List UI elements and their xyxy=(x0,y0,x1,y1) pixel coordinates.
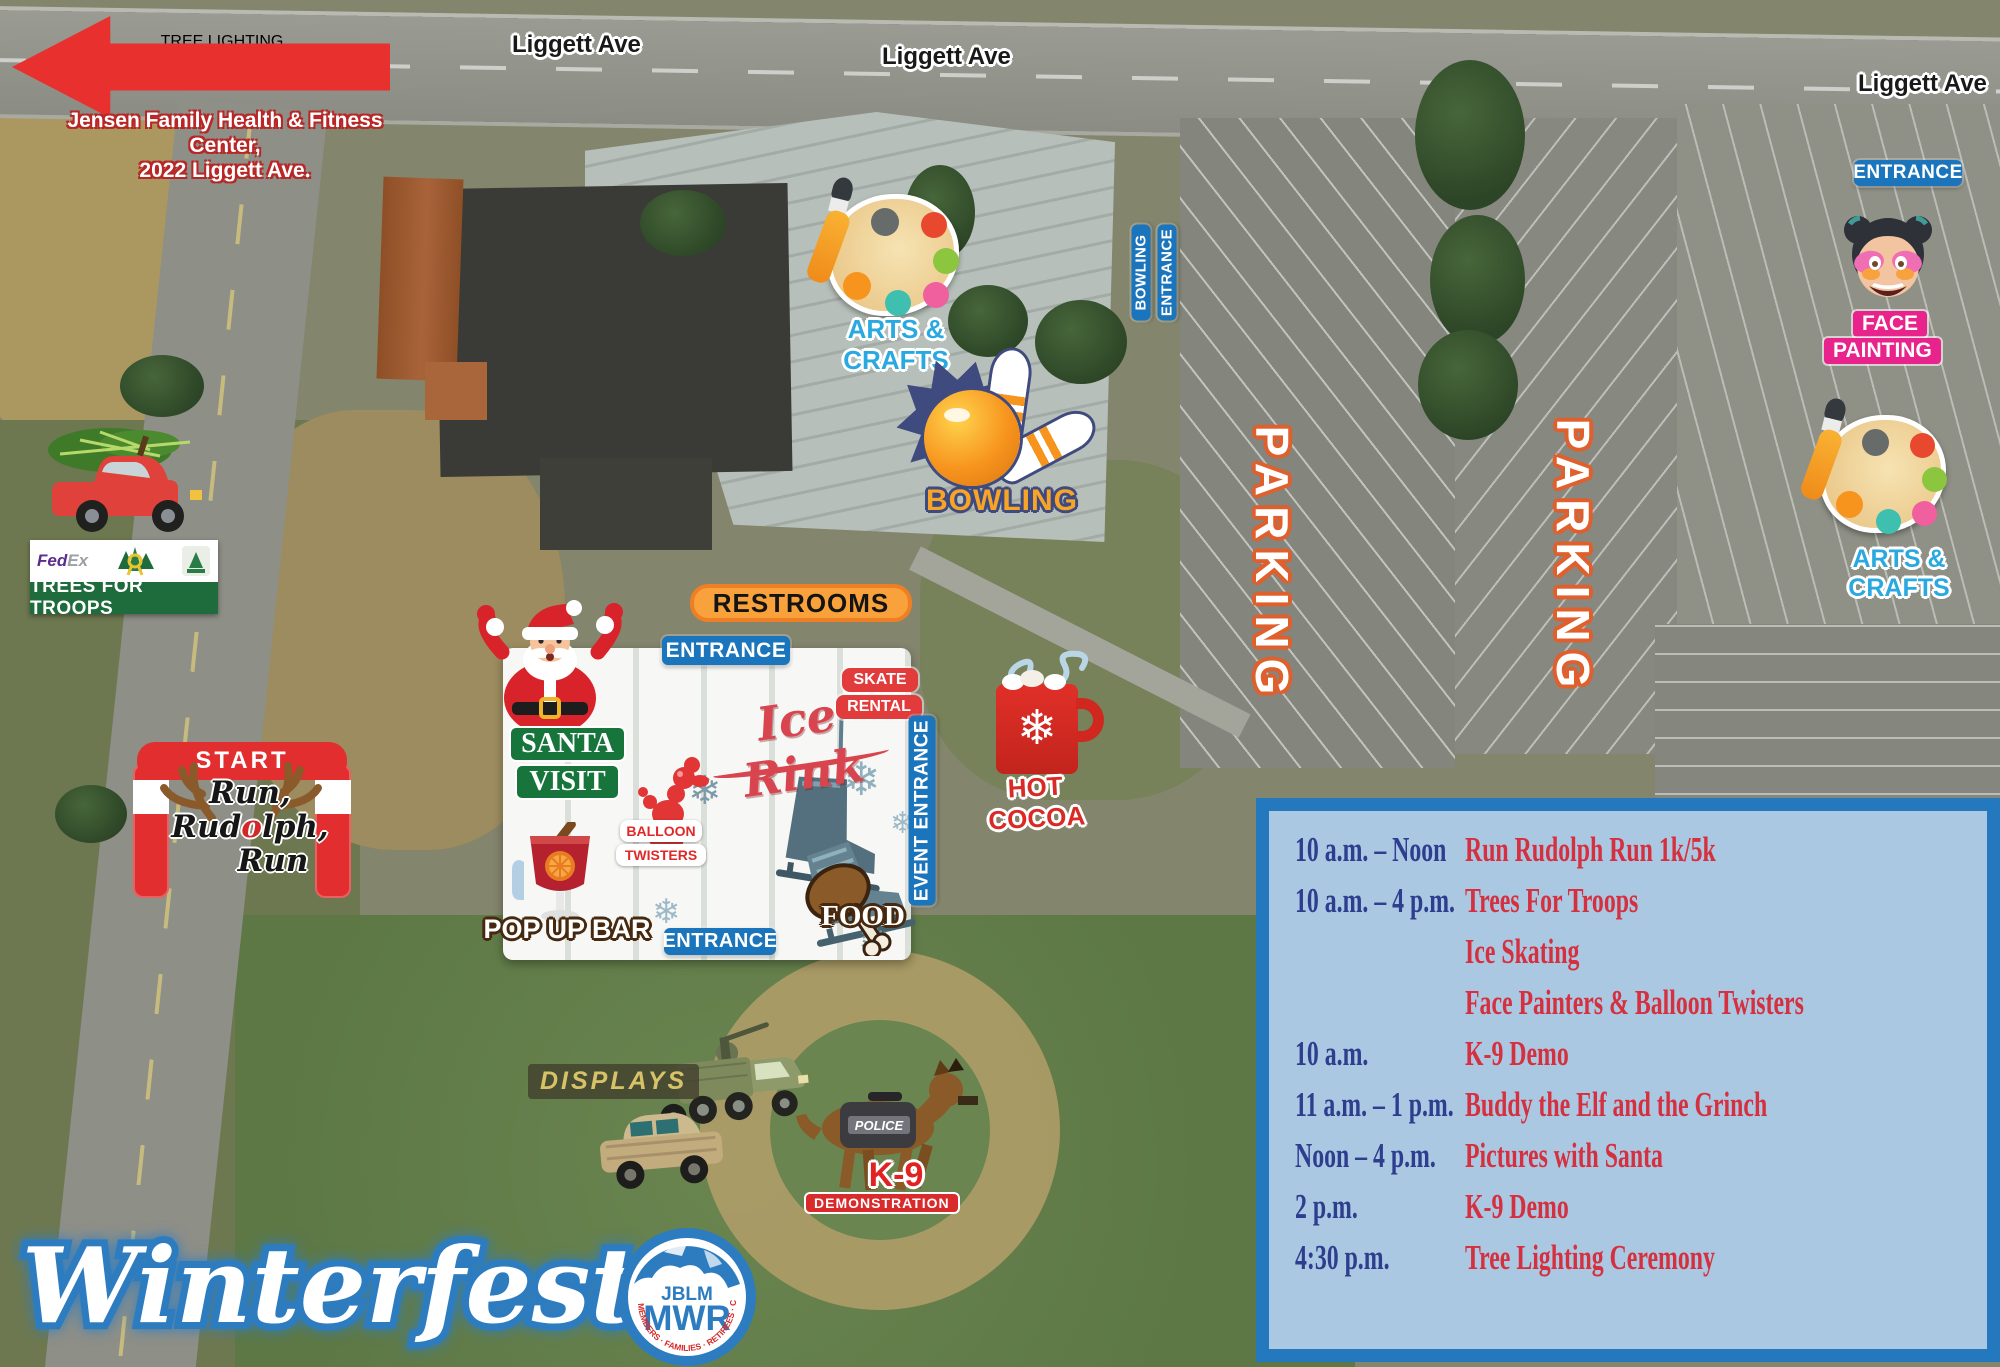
snowflake-icon: ❄ xyxy=(1017,705,1057,753)
parking-lot-center-left xyxy=(1180,118,1455,768)
humvee-icon xyxy=(582,1086,743,1207)
schedule-event: Ice Skating xyxy=(1465,932,1579,972)
street-liggett-ave-1: Liggett Ave xyxy=(512,31,641,59)
jblm-mwr-logo: JBLM MWR SERVICE MEMBERS · FAMILIES · RE… xyxy=(612,1222,762,1367)
winterfest-event-map: TREE LIGHTING Jensen Family Health & Fit… xyxy=(0,0,2000,1367)
run-rudolph-run-text: Run, Rudolph, Run xyxy=(162,776,338,878)
schedule-time: 11 a.m. – 1 p.m. xyxy=(1295,1085,1454,1125)
trees-for-troops-label: TREES FOR TROOPS xyxy=(30,582,218,614)
tree-blob xyxy=(120,355,204,417)
trees-for-troops-truck-icon xyxy=(40,420,220,542)
balloon-twisters-line1: BALLOON xyxy=(620,820,702,842)
santa-visit-badge: SANTA VISIT xyxy=(500,726,635,800)
trees-for-troops-banner: FedEx TREES FOR TROOPS xyxy=(30,540,218,614)
bowling-ball-icon xyxy=(924,390,1020,486)
restrooms-label: RESTROOMS xyxy=(690,584,912,622)
run-line2-pre: Rud xyxy=(171,809,241,845)
palette-thumb-hole xyxy=(1862,429,1889,456)
schedule-event: Buddy the Elf and the Grinch xyxy=(1465,1085,1767,1125)
run-line3: Run xyxy=(162,844,338,878)
santa-icon xyxy=(468,594,632,736)
building-barn-rust xyxy=(376,177,463,382)
schedule-event: K-9 Demo xyxy=(1465,1034,1569,1074)
palette-icon xyxy=(1800,405,1960,551)
pop-up-bar-label: POP UP BAR xyxy=(482,914,652,945)
schedule-event: K-9 Demo xyxy=(1465,1187,1569,1227)
arts-crafts-right-group xyxy=(1800,405,1960,551)
schedule-time: Noon – 4 p.m. xyxy=(1295,1136,1436,1176)
trees-ribbon-icon xyxy=(108,543,162,579)
fedex-ex: Ex xyxy=(67,551,88,570)
bowling-entrance-vertical-line2: ENTRANCE xyxy=(1158,225,1177,321)
schedule-time: 4:30 p.m. xyxy=(1295,1238,1390,1278)
k9-label: K-9 xyxy=(846,1156,946,1195)
fedex-logo: FedEx xyxy=(37,551,88,571)
parking-label-1: PARKING xyxy=(1246,400,1298,730)
schedule-event: Run Rudolph Run 1k/5k xyxy=(1465,830,1716,870)
santa-visit-line1: SANTA xyxy=(509,726,626,762)
schedule-row: Ice Skating xyxy=(1269,927,1987,978)
fedex-fed: Fed xyxy=(37,551,67,570)
foundation-logo xyxy=(181,544,211,578)
palette-thumb-hole xyxy=(871,208,899,236)
schedule-time: 2 p.m. xyxy=(1295,1187,1358,1227)
schedule-row: 4:30 p.m.Tree Lighting Ceremony xyxy=(1269,1233,1987,1284)
marshmallows xyxy=(1002,674,1072,692)
bowling-label: BOWLING xyxy=(922,484,1082,518)
subtitle-line2: 2022 Liggett Ave. xyxy=(50,158,400,183)
face-painting-label-line2: PAINTING xyxy=(1824,338,1941,364)
schedule-row: 10 a.m.K-9 Demo xyxy=(1269,1029,1987,1080)
schedule-event: Tree Lighting Ceremony xyxy=(1465,1238,1715,1278)
schedule-row: 10 a.m. – 4 p.m.Trees For Troops xyxy=(1269,876,1987,927)
arts-crafts-right-label: ARTS & CRAFTS xyxy=(1804,545,1994,603)
schedule-row: Face Painters & Balloon Twisters xyxy=(1269,978,1987,1029)
entrance-rink-top: ENTRANCE xyxy=(662,636,790,665)
tree-blob xyxy=(640,190,726,256)
subtitle-line1: Jensen Family Health & Fitness Center, xyxy=(50,108,400,158)
schedule-event: Pictures with Santa xyxy=(1465,1136,1663,1176)
run-line2-post: lph, xyxy=(262,809,329,845)
schedule-time: 10 a.m. – Noon xyxy=(1295,830,1446,870)
snowflake-icon: ❄ xyxy=(652,892,681,932)
face-painting-icon xyxy=(1836,214,1940,316)
bowling-icon xyxy=(900,350,1110,490)
rudolph-nose: o xyxy=(241,809,262,845)
winterfest-logo: Winterfest xyxy=(10,1196,660,1366)
building-barn-annex xyxy=(425,362,487,420)
schedule-event: Face Painters & Balloon Twisters xyxy=(1465,983,1804,1023)
santa-visit-line2: VISIT xyxy=(515,764,619,800)
entrance-top-right: ENTRANCE xyxy=(1854,160,1962,186)
police-vest-label: POLICE xyxy=(855,1118,904,1133)
tree-blob xyxy=(1418,330,1518,440)
event-entrance-vertical: EVENT ENTRANCE xyxy=(909,716,936,906)
schedule-panel: 10 a.m. – NoonRun Rudolph Run 1k/5k 10 a… xyxy=(1256,798,2000,1362)
tree-blob xyxy=(1430,215,1525,345)
tree-blob xyxy=(55,785,127,843)
schedule-row: 10 a.m. – NoonRun Rudolph Run 1k/5k xyxy=(1269,825,1987,876)
food-label: FOOD xyxy=(808,900,918,933)
hot-cocoa-label: HOT COCOA xyxy=(964,768,1107,837)
schedule-time: 10 a.m. – 4 p.m. xyxy=(1295,881,1455,921)
schedule-event: Trees For Troops xyxy=(1465,881,1638,921)
bowling-entrance-vertical-line1: BOWLING xyxy=(1132,225,1151,321)
building-fitness-roof-dark xyxy=(436,183,793,477)
tree-lighting-subtitle: Jensen Family Health & Fitness Center, 2… xyxy=(50,108,400,183)
hot-cocoa-mug-icon: ❄ xyxy=(996,684,1078,774)
schedule-row: 2 p.m.K-9 Demo xyxy=(1269,1182,1987,1233)
winterfest-logo-text: Winterfest xyxy=(22,1224,639,1347)
entrance-rink-bottom: ENTRANCE xyxy=(664,928,776,955)
street-liggett-ave-3: Liggett Ave xyxy=(1858,70,1987,98)
building-annex-dark xyxy=(540,458,712,550)
skate-rental-line2: RENTAL xyxy=(836,695,922,719)
balloon-twisters-line2: TWISTERS xyxy=(616,844,706,866)
displays-label: DISPLAYS xyxy=(528,1064,699,1099)
k9-demonstration-label: DEMONSTRATION xyxy=(804,1192,960,1214)
parking-label-2: PARKING xyxy=(1547,393,1599,723)
street-liggett-ave-2: Liggett Ave xyxy=(882,43,1011,71)
schedule-row: Noon – 4 p.m.Pictures with Santa xyxy=(1269,1131,1987,1182)
tree-blob xyxy=(1415,60,1525,210)
schedule-time: 10 a.m. xyxy=(1295,1034,1368,1074)
run-line1: Run, xyxy=(162,776,338,810)
schedule-row: 11 a.m. – 1 p.m.Buddy the Elf and the Gr… xyxy=(1269,1080,1987,1131)
skate-rental-line1: SKATE xyxy=(842,668,918,692)
face-painting-label-line1: FACE xyxy=(1853,311,1927,337)
